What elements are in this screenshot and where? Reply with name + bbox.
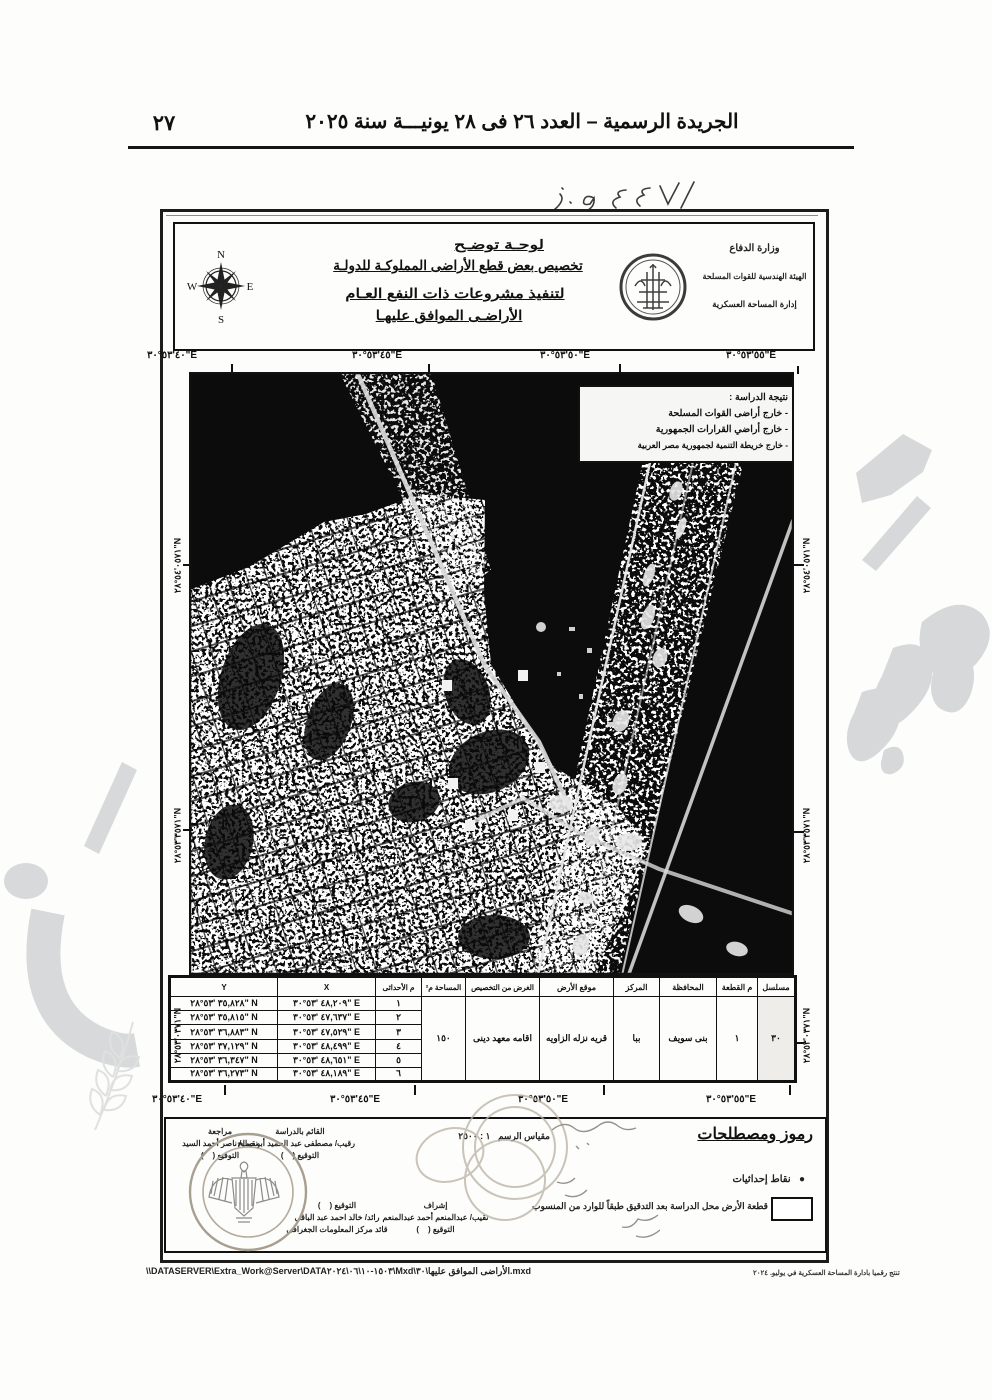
svg-text:W: W	[187, 281, 198, 293]
svg-text:S: S	[218, 314, 224, 326]
svg-text:N: N	[217, 249, 225, 261]
svg-text:E: E	[247, 281, 254, 293]
